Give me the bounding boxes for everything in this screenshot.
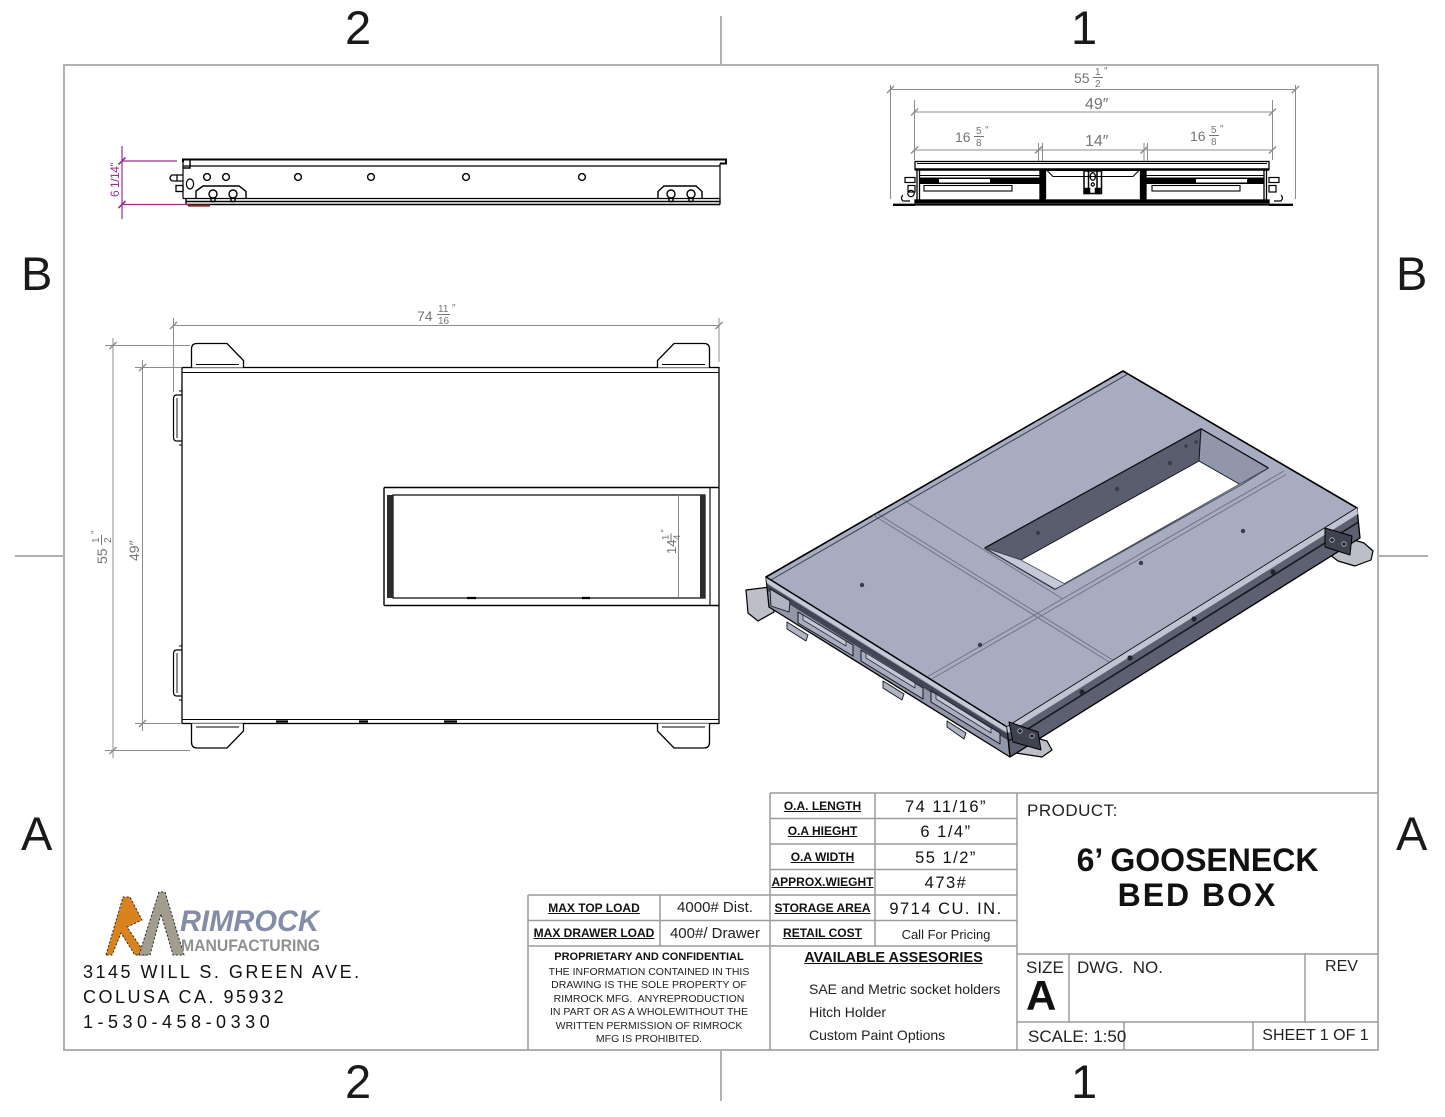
svg-text:74: 74: [417, 308, 433, 324]
svg-text:8: 8: [976, 138, 982, 149]
svg-text:5: 5: [976, 126, 982, 137]
svg-text:″: ″: [452, 303, 456, 314]
svg-text:″: ″: [985, 125, 989, 136]
svg-text:49″: 49″: [1085, 96, 1109, 113]
svg-text:″: ″: [90, 530, 101, 534]
svg-text:16: 16: [955, 129, 971, 145]
svg-text:″: ″: [660, 529, 671, 533]
svg-text:49″: 49″: [126, 540, 142, 561]
svg-text:6 1/14”: 6 1/14”: [108, 163, 122, 197]
svg-text:1: 1: [661, 535, 672, 540]
svg-text:4: 4: [672, 535, 683, 540]
svg-text:8: 8: [1211, 137, 1217, 148]
svg-text:14: 14: [664, 540, 679, 554]
svg-text:MANUFACTURING: MANUFACTURING: [181, 936, 320, 955]
svg-text:16: 16: [1190, 128, 1206, 144]
svg-text:1: 1: [91, 537, 102, 543]
svg-text:2: 2: [103, 537, 114, 543]
svg-text:1: 1: [1095, 67, 1101, 78]
svg-text:14″: 14″: [1085, 133, 1109, 150]
svg-text:″: ″: [1220, 124, 1224, 135]
svg-text:16: 16: [438, 316, 450, 327]
svg-text:55: 55: [1074, 70, 1090, 86]
svg-text:RIMROCK: RIMROCK: [180, 905, 321, 938]
svg-text:55: 55: [94, 548, 110, 564]
svg-text:5: 5: [1211, 125, 1217, 136]
svg-text:″: ″: [1104, 66, 1108, 77]
svg-text:2: 2: [1095, 79, 1101, 90]
svg-text:11: 11: [438, 304, 449, 315]
